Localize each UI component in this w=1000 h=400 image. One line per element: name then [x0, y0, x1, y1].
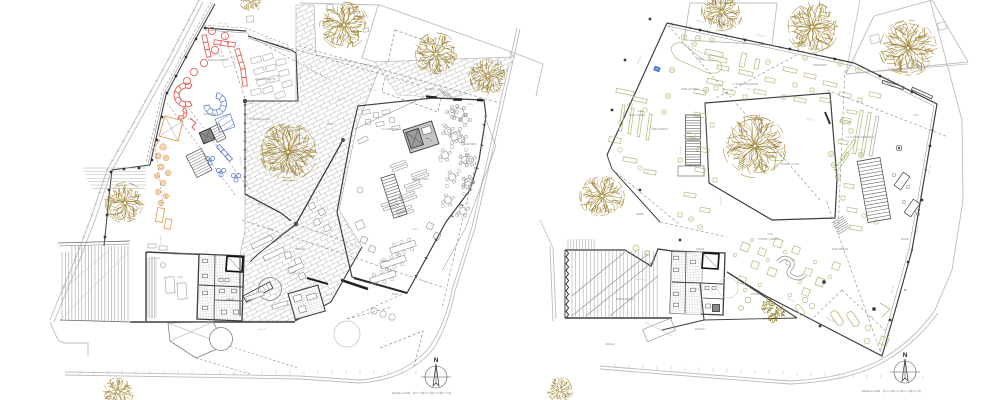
svg-text:1.2.1: 1.2.1 — [412, 228, 418, 231]
svg-text:VACIO S. ACTOS: VACIO S. ACTOS — [781, 163, 800, 166]
svg-text:TERRAZA: TERRAZA — [295, 248, 306, 251]
svg-text:ZONA ESTUDIO: ZONA ESTUDIO — [411, 178, 428, 181]
svg-text:ESCALA: ESCALA — [605, 343, 615, 346]
svg-text:ZONA PRENSA: ZONA PRENSA — [832, 248, 849, 251]
svg-text:ACCESO 2: ACCESO 2 — [694, 328, 706, 331]
svg-text:N: N — [434, 358, 438, 364]
svg-text:VITRINA: VITRINA — [750, 293, 760, 296]
svg-text:RAMPA ACCESO: RAMPA ACCESO — [616, 298, 634, 301]
svg-text:1.5.8: 1.5.8 — [767, 233, 773, 236]
svg-text:ZONA: ZONA — [697, 58, 704, 61]
svg-text:1.1.9: 1.1.9 — [757, 118, 763, 121]
svg-text:1.8.1: 1.8.1 — [913, 114, 919, 117]
svg-text:1.1.5: 1.1.5 — [267, 228, 273, 231]
svg-text:AREA INFANTIL: AREA INFANTIL — [652, 128, 670, 131]
svg-text:GUARDAROPA: GUARDAROPA — [172, 253, 189, 256]
svg-text:ZONA EL RINCON: ZONA EL RINCON — [208, 59, 228, 62]
svg-text:1.2.5: 1.2.5 — [867, 316, 873, 319]
svg-text:2.40 1.2.0: 2.40 1.2.0 — [159, 236, 161, 246]
svg-text:N: N — [903, 353, 907, 359]
svg-text:FONDO: FONDO — [901, 239, 910, 241]
svg-text:RAMPA: RAMPA — [636, 213, 644, 216]
svg-text:TRABAJO: TRABAJO — [380, 260, 391, 263]
svg-text:ESCALA 1/100: ESCALA 1/100 — [392, 391, 410, 395]
svg-text:1.1.9 CUENTACUENTOS: 1.1.9 CUENTACUENTOS — [732, 83, 759, 86]
svg-text:ZONA LECTURA: ZONA LECTURA — [681, 88, 699, 91]
svg-text:ASEOS: ASEOS — [696, 248, 705, 251]
svg-text:AREA JUVENIL: AREA JUVENIL — [629, 114, 647, 117]
svg-text:ACCESO: ACCESO — [425, 88, 435, 91]
svg-text:ZONA DE LECTURA: ZONA DE LECTURA — [249, 118, 271, 121]
svg-text:TARIMA: TARIMA — [258, 203, 267, 206]
svg-text:1.1.2: 1.1.2 — [218, 55, 224, 58]
svg-text:ASEOS: ASEOS — [226, 298, 234, 301]
svg-text:SALA: SALA — [392, 293, 399, 296]
svg-text:1.1.3: 1.1.3 — [187, 118, 193, 121]
svg-text:3.2.1: 3.2.1 — [467, 103, 473, 106]
svg-text:ESCALA 1/100: ESCALA 1/100 — [862, 389, 880, 393]
svg-text:CAFETERIA: CAFETERIA — [464, 143, 477, 146]
svg-text:TERRAZA INFANTIL: TERRAZA INFANTIL — [254, 78, 276, 81]
svg-text:1.1.8: 1.1.8 — [177, 276, 183, 279]
svg-text:PRESTAMO: PRESTAMO — [813, 64, 826, 67]
svg-text:ESCALERA: ESCALERA — [204, 113, 217, 116]
svg-text:1.2.1: 1.2.1 — [637, 110, 643, 113]
svg-text:2.40 1.2.0: 2.40 1.2.0 — [299, 71, 301, 81]
svg-text:ZONA: ZONA — [327, 123, 334, 126]
svg-text:VITRINA Y JARDIN: VITRINA Y JARDIN — [758, 238, 779, 241]
svg-text:PATIO: PATIO — [297, 158, 304, 161]
svg-text:1.2.1 PRESTAMO: 1.2.1 PRESTAMO — [381, 128, 400, 131]
svg-text:1.2.2 FONDO GENERAL 2: 1.2.2 FONDO GENERAL 2 — [846, 136, 875, 139]
